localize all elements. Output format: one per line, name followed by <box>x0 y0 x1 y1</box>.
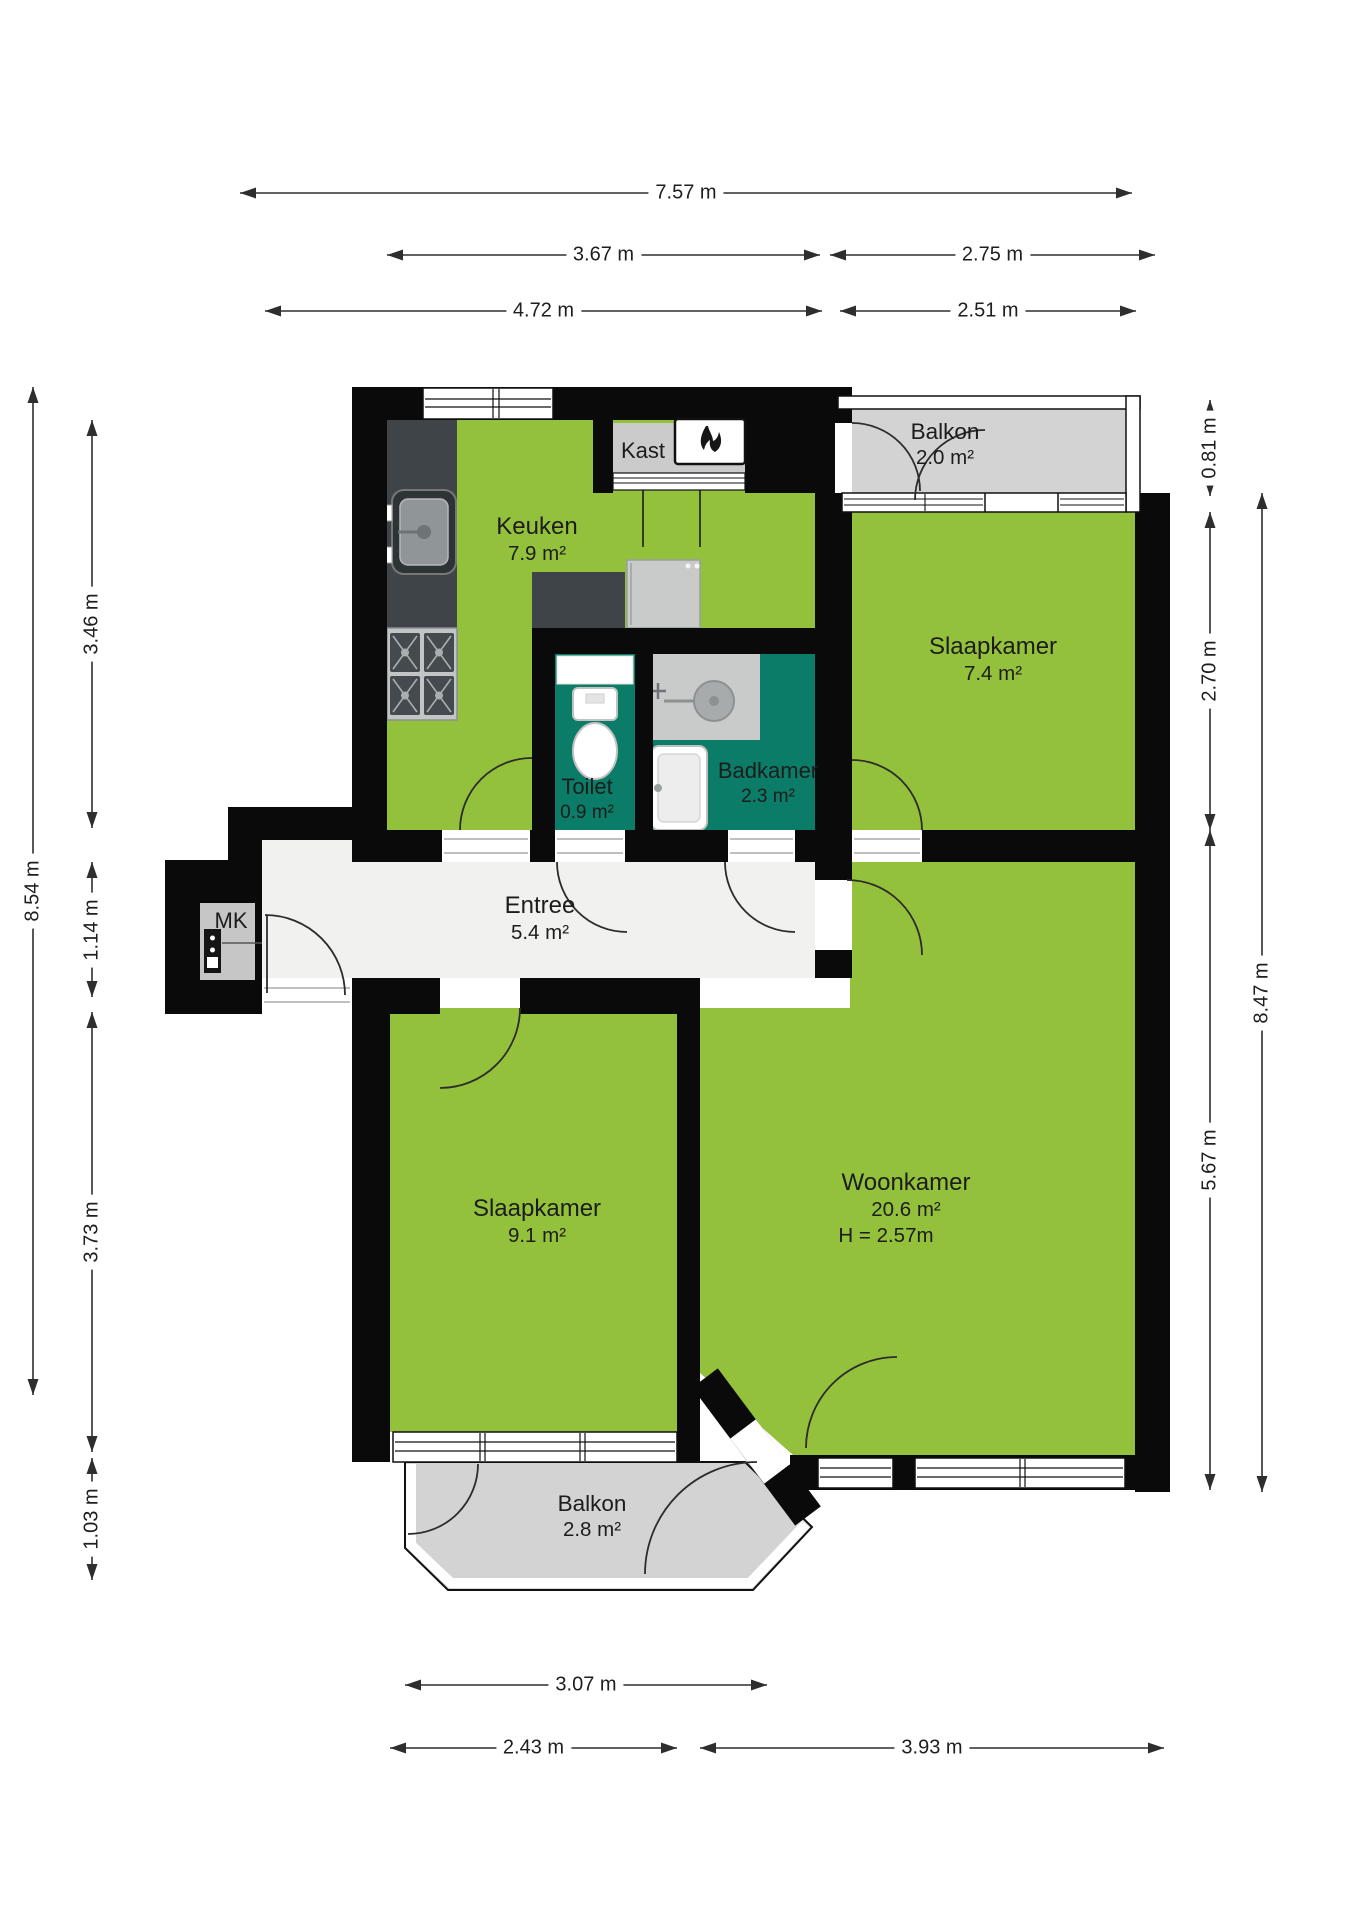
dimension-label: 2.70 m <box>1199 633 1222 708</box>
slaapkamer-links-window <box>393 1432 677 1462</box>
room-label-slaapkamer-links: Slaapkamer 9.1 m² <box>473 1194 601 1248</box>
dimension-label: 4.72 m <box>506 300 581 323</box>
dimension-label: 3.46 m <box>81 586 104 661</box>
entree-floor2 <box>352 862 815 978</box>
room-label-balkon-boven: Balkon 2.0 m² <box>911 418 980 470</box>
stove-icon <box>387 628 457 720</box>
room-label-kast: Kast <box>621 438 665 464</box>
dimension-label: 8.54 m <box>22 853 45 928</box>
room-label-toilet: Toilet 0.9 m² <box>560 774 614 824</box>
room-label-entree: Entree 5.4 m² <box>505 891 576 945</box>
balkon-boven-window <box>842 493 1126 512</box>
floor-plan: Keuken 7.9 m² Kast Balkon 2.0 m² Slaapka… <box>0 0 1358 1920</box>
dimension-label: 1.14 m <box>81 892 104 967</box>
balkon-boven-floor <box>842 409 1126 493</box>
kitchen-appliance-dark <box>532 572 625 628</box>
dimension-label: 3.93 m <box>894 1737 969 1760</box>
ceiling-height-label: H = 2.57m <box>838 1224 933 1248</box>
dimension-label: 2.75 m <box>955 244 1030 267</box>
dimension-label: 0.81 m <box>1199 410 1222 485</box>
room-label-mk: MK <box>215 908 248 934</box>
room-label-woonkamer: Woonkamer 20.6 m² <box>842 1168 971 1222</box>
dimension-label: 2.51 m <box>950 300 1025 323</box>
room-label-keuken: Keuken 7.9 m² <box>496 512 577 566</box>
toilet-icon <box>573 688 617 779</box>
floor-plan-drawing <box>0 0 1358 1920</box>
room-label-slaapkamer-boven: Slaapkamer 7.4 m² <box>929 632 1057 686</box>
dimension-label: 5.67 m <box>1199 1122 1222 1197</box>
dimension-label: 8.47 m <box>1251 955 1274 1030</box>
room-label-badkamer: Badkamer 2.3 m² <box>718 758 818 808</box>
water-heater-icon <box>675 419 745 464</box>
kitchen-window <box>423 388 553 419</box>
woonkamer-windows <box>818 1458 1125 1488</box>
washbasin-icon <box>651 746 707 830</box>
dimension-label: 3.73 m <box>81 1194 104 1269</box>
dimension-label: 2.43 m <box>496 1737 571 1760</box>
toilet-window <box>557 656 633 684</box>
dimension-label: 1.03 m <box>81 1481 104 1556</box>
dimension-label: 3.67 m <box>566 244 641 267</box>
room-label-balkon-onder: Balkon 2.8 m² <box>558 1490 627 1542</box>
dimension-label: 3.07 m <box>548 1674 623 1697</box>
sink-icon <box>383 490 456 574</box>
dimension-label: 7.57 m <box>648 182 723 205</box>
kitchen-appliance-light <box>627 560 700 628</box>
